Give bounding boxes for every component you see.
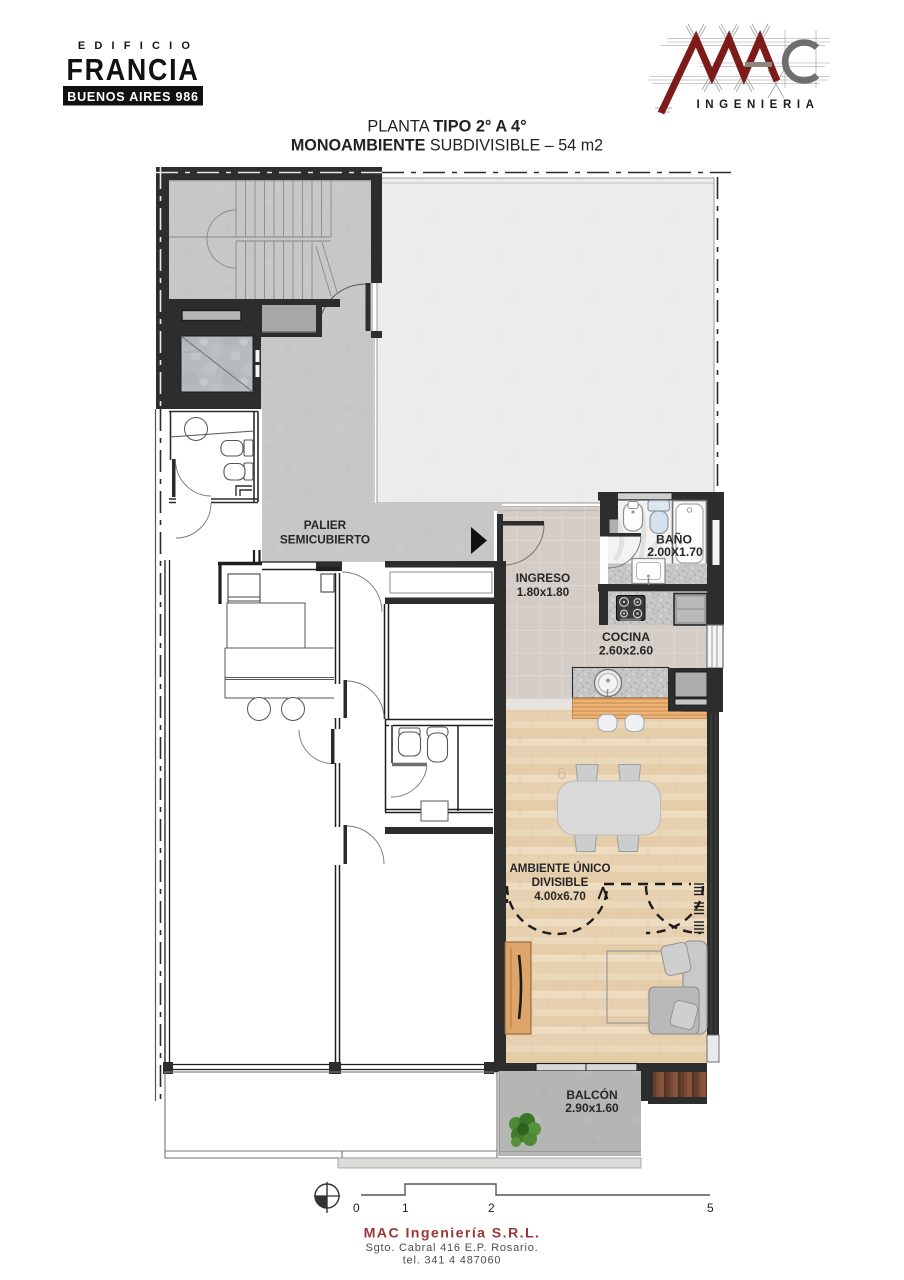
svg-text:PLANTA TIPO 2° A 4°: PLANTA TIPO 2° A 4°	[367, 116, 526, 135]
svg-text:BUENOS AIRES 986: BUENOS AIRES 986	[67, 89, 198, 104]
svg-text:EDIFICIO: EDIFICIO	[78, 40, 199, 52]
svg-text:1.80x1.80: 1.80x1.80	[517, 585, 570, 599]
svg-text:INGRESO: INGRESO	[516, 571, 570, 585]
svg-text:MONOAMBIENTE SUBDIVISIBLE – 54: MONOAMBIENTE SUBDIVISIBLE – 54 m2	[291, 135, 603, 154]
svg-text:tel. 341 4 487060: tel. 341 4 487060	[403, 1255, 502, 1267]
svg-text:Sgto. Cabral 416 E.P. Rosario.: Sgto. Cabral 416 E.P. Rosario.	[366, 1242, 539, 1254]
svg-text:4.00x6.70: 4.00x6.70	[534, 890, 586, 903]
svg-text:DIVISIBLE: DIVISIBLE	[532, 876, 589, 889]
svg-text:6: 6	[557, 764, 566, 783]
svg-text:COCINA: COCINA	[602, 630, 650, 644]
svg-text:5: 5	[707, 1201, 714, 1215]
svg-text:2: 2	[488, 1201, 495, 1215]
svg-text:2.60x2.60: 2.60x2.60	[599, 644, 653, 658]
svg-text:SEMICUBIERTO: SEMICUBIERTO	[280, 533, 370, 547]
svg-text:0: 0	[353, 1201, 360, 1215]
svg-text:FRANCIA: FRANCIA	[66, 53, 199, 87]
svg-text:MAC Ingeniería S.R.L.: MAC Ingeniería S.R.L.	[364, 1226, 541, 1242]
svg-text:INGENIERIA: INGENIERIA	[696, 99, 819, 111]
svg-text:1: 1	[402, 1201, 409, 1215]
svg-text:PALIER: PALIER	[304, 518, 347, 532]
svg-text:2.90x1.60: 2.90x1.60	[565, 1101, 619, 1115]
svg-text:BALCÓN: BALCÓN	[566, 1087, 617, 1102]
svg-text:2.00X1.70: 2.00X1.70	[647, 545, 703, 559]
svg-text:AMBIENTE ÚNICO: AMBIENTE ÚNICO	[509, 862, 610, 875]
